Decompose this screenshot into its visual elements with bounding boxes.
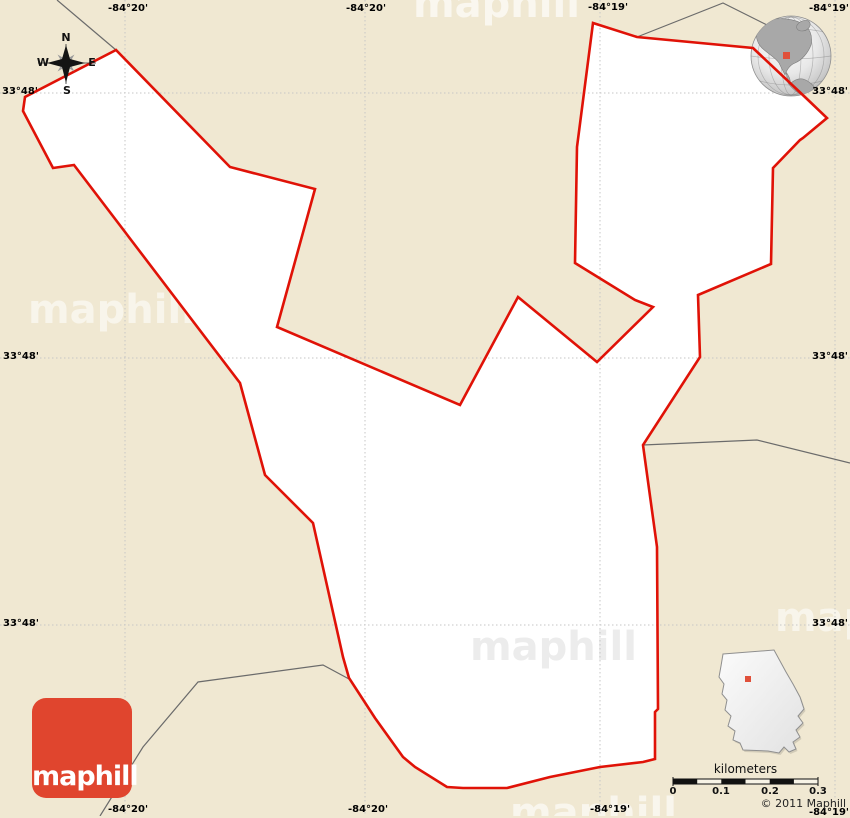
grid-label-right-3: 33°48' [812, 618, 848, 629]
grid-label-left-2: 33°48' [3, 351, 39, 362]
scale-tick-0: 0 [670, 786, 677, 797]
compass-west-label: W [37, 56, 49, 69]
grid-label-bottom-2: -84°20' [348, 804, 388, 815]
watermark-center: maphill [470, 624, 637, 670]
map-canvas: maphill maphill maphill maphill maphill [0, 0, 850, 816]
grid-label-bottom-1: -84°20' [108, 804, 148, 815]
compass-south-label: S [63, 84, 71, 97]
scale-tick-1: 0.1 [712, 786, 730, 797]
maphill-logo[interactable]: maphill [32, 698, 132, 798]
simple-map-page: { "colors": { "background": "#f0e8d2", "… [0, 0, 850, 816]
maphill-logo-text: maphill [32, 761, 132, 792]
grid-label-bottom-3: -84°19' [590, 804, 630, 815]
globe-location-marker [783, 52, 790, 59]
scale-tick-2: 0.2 [761, 786, 779, 797]
copyright-notice: © 2011 Maphill [761, 797, 846, 810]
scale-bar-title: kilometers [673, 762, 818, 776]
grid-label-top-1: -84°20' [108, 3, 148, 14]
grid-label-top-2: -84°20' [346, 3, 386, 14]
grid-label-top-3: -84°19' [588, 2, 628, 13]
compass-north-label: N [61, 31, 70, 44]
watermark-left: maphill [28, 287, 195, 333]
inset-location-marker [745, 676, 751, 682]
compass-east-label: E [88, 56, 96, 69]
grid-label-top-4: -84°19' [809, 3, 849, 14]
grid-label-right-2: 33°48' [812, 351, 848, 362]
grid-label-right-1: 33°48' [812, 86, 848, 97]
watermark-top: maphill [413, 0, 580, 27]
scale-tick-3: 0.3 [809, 786, 827, 797]
grid-label-left-1: 33°48' [2, 86, 38, 97]
grid-label-left-3: 33°48' [3, 618, 39, 629]
